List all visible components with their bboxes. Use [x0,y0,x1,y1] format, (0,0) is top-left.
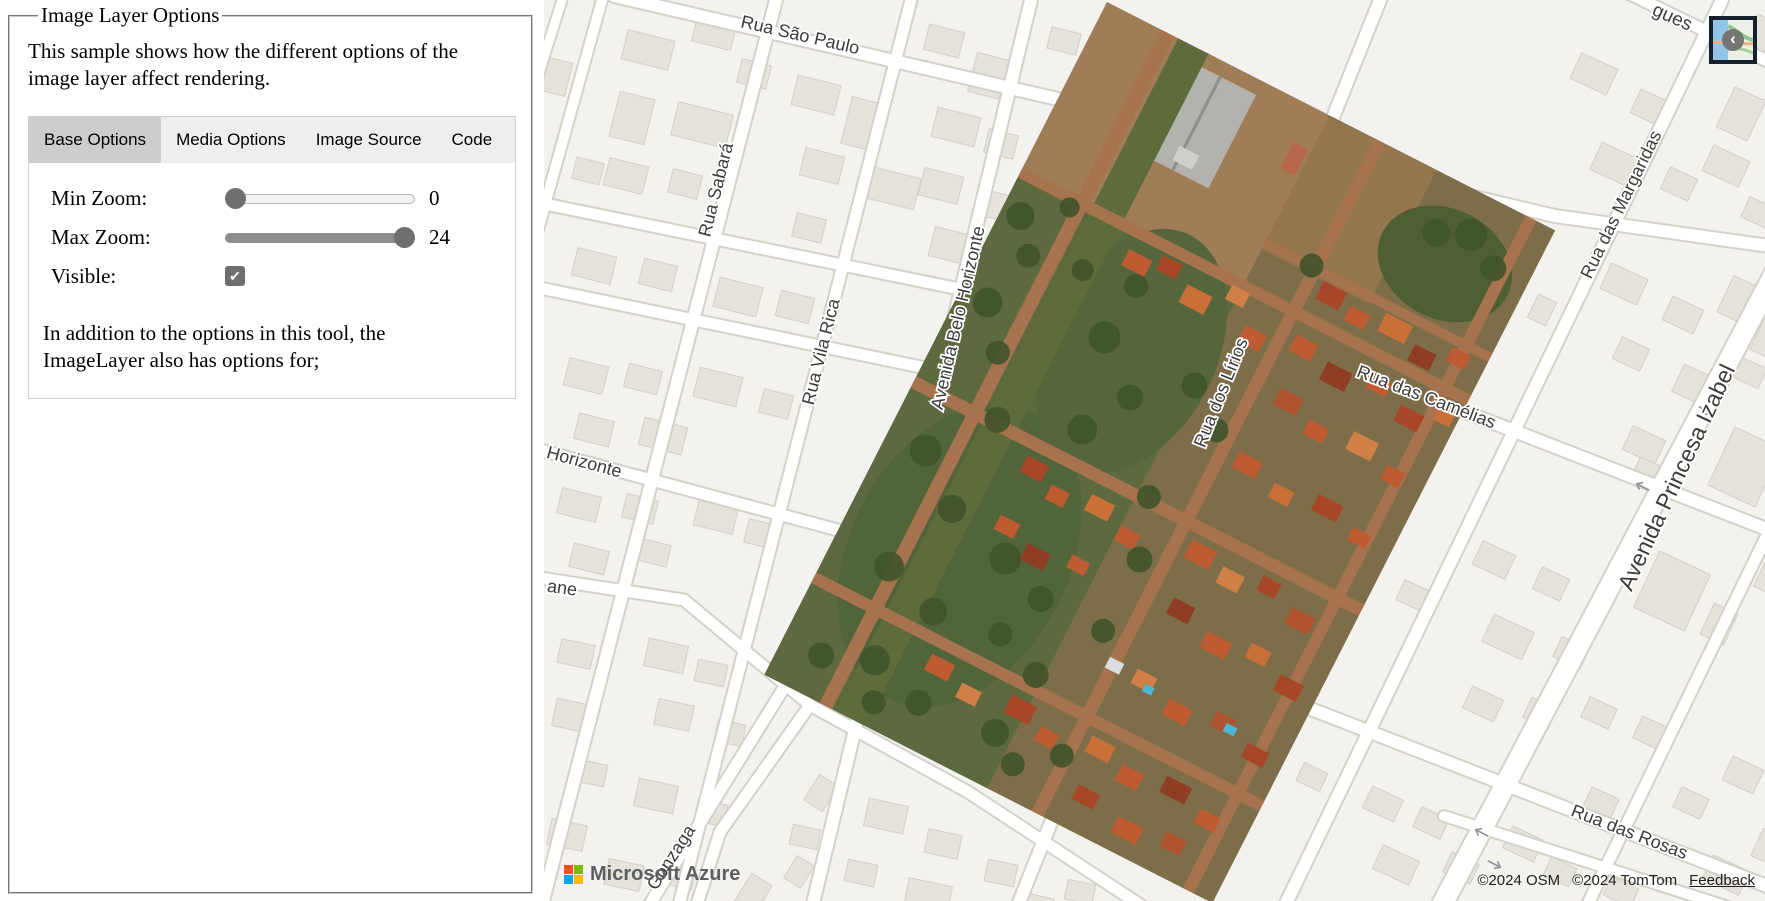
min-zoom-value: 0 [429,186,440,211]
tab-code[interactable]: Code [437,117,508,163]
feedback-link[interactable]: Feedback [1689,872,1755,889]
visible-checkbox[interactable]: ✔ [225,266,245,286]
map-canvas: Rua São PauloRua SabaráRua Vila RicaAven… [544,0,1765,901]
max-zoom-slider-thumb[interactable] [394,227,415,248]
tab-image-source[interactable]: Image Source [301,117,437,163]
max-zoom-row: Max Zoom:24 [51,218,515,257]
map[interactable]: Rua São PauloRua SabaráRua Vila RicaAven… [544,0,1765,901]
tomtom-copyright: ©2024 TomTom [1572,872,1677,889]
osm-copyright: ©2024 OSM [1477,872,1560,889]
max-zoom-label: Max Zoom: [51,225,225,250]
min-zoom-label: Min Zoom: [51,186,225,211]
azure-watermark: Microsoft Azure [564,863,740,886]
microsoft-logo-icon [564,865,583,884]
intro-text: This sample shows how the different opti… [28,38,498,92]
visible-row: Visible:✔ [51,257,515,296]
watermark-text: Microsoft Azure [590,863,740,886]
tab-base-options[interactable]: Base Options [29,117,161,163]
map-style-picker-button[interactable]: ‹ [1709,16,1757,64]
visible-label: Visible: [51,264,225,289]
tab-media-options[interactable]: Media Options [161,117,301,163]
options-panel: Image Layer Options This sample shows ho… [0,0,544,901]
min-zoom-slider-thumb[interactable] [225,188,246,209]
street-label: ane [546,576,579,600]
tab-bar: Base OptionsMedia OptionsImage SourceCod… [29,117,515,163]
note-text: In addition to the options in this tool,… [43,320,489,375]
chevron-left-icon[interactable]: ‹ [1722,29,1744,51]
max-zoom-value: 24 [429,225,450,250]
min-zoom-slider[interactable] [225,187,415,209]
controls-area: Min Zoom:0Max Zoom:24Visible:✔ [29,163,515,300]
max-zoom-slider[interactable] [225,226,415,248]
panel-legend: Image Layer Options [38,3,222,28]
options-box: Base OptionsMedia OptionsImage SourceCod… [28,116,516,400]
min-zoom-row: Min Zoom:0 [51,179,515,218]
map-attribution: ©2024 OSM ©2024 TomTom Feedback [1477,872,1755,889]
image-layer-options-fieldset: Image Layer Options This sample shows ho… [8,3,533,894]
